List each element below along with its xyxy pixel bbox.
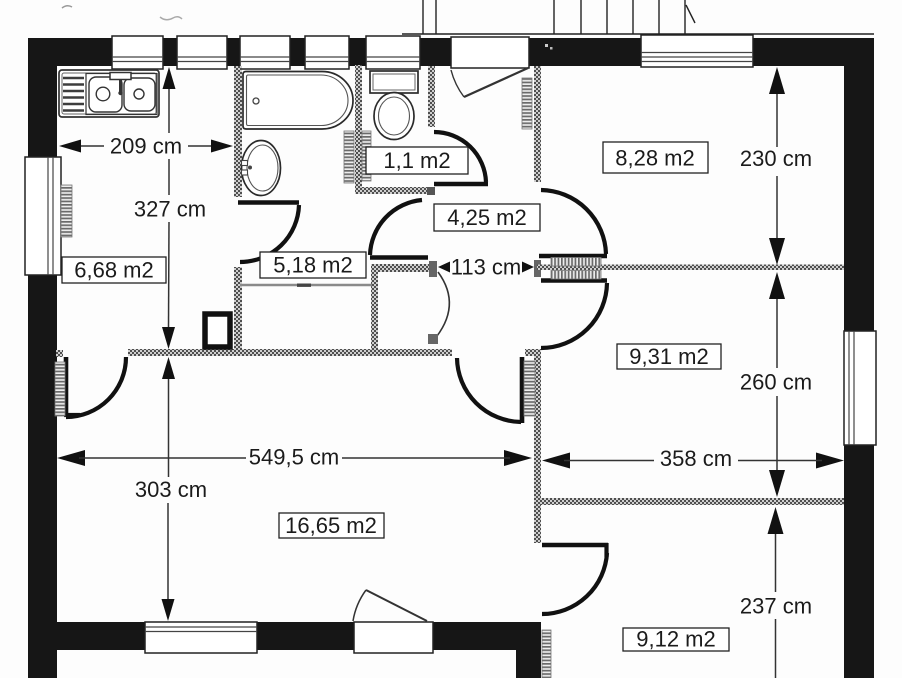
svg-text:209 cm: 209 cm (110, 134, 182, 159)
svg-text:8,28 m2: 8,28 m2 (615, 146, 695, 171)
svg-text:230 cm: 230 cm (740, 146, 812, 171)
svg-text:9,12 m2: 9,12 m2 (636, 627, 716, 652)
svg-text:9,31 m2: 9,31 m2 (629, 344, 709, 369)
svg-text:358 cm: 358 cm (660, 446, 732, 471)
svg-text:260 cm: 260 cm (740, 370, 812, 395)
svg-text:16,65 m2: 16,65 m2 (285, 513, 377, 538)
svg-text:5,18 m2: 5,18 m2 (273, 253, 353, 278)
svg-text:113 cm: 113 cm (451, 255, 522, 280)
svg-text:303 cm: 303 cm (135, 477, 207, 502)
svg-text:6,68 m2: 6,68 m2 (74, 258, 154, 283)
svg-text:4,25 m2: 4,25 m2 (447, 205, 527, 230)
svg-text:1,1 m2: 1,1 m2 (383, 148, 450, 173)
svg-text:549,5 cm: 549,5 cm (249, 445, 340, 470)
svg-text:327 cm: 327 cm (134, 197, 206, 222)
svg-text:237 cm: 237 cm (740, 594, 812, 619)
